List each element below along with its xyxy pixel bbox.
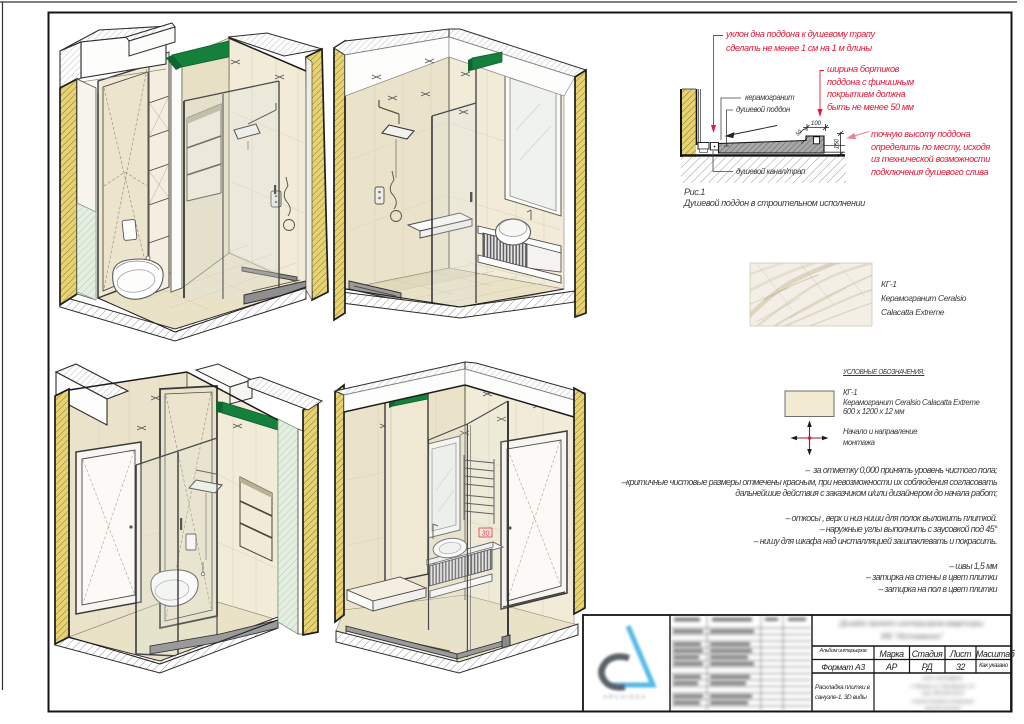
svg-text:ARCHIDEA: ARCHIDEA	[603, 695, 647, 701]
svg-text:100: 100	[811, 121, 822, 127]
svg-text:150: 150	[835, 138, 841, 149]
